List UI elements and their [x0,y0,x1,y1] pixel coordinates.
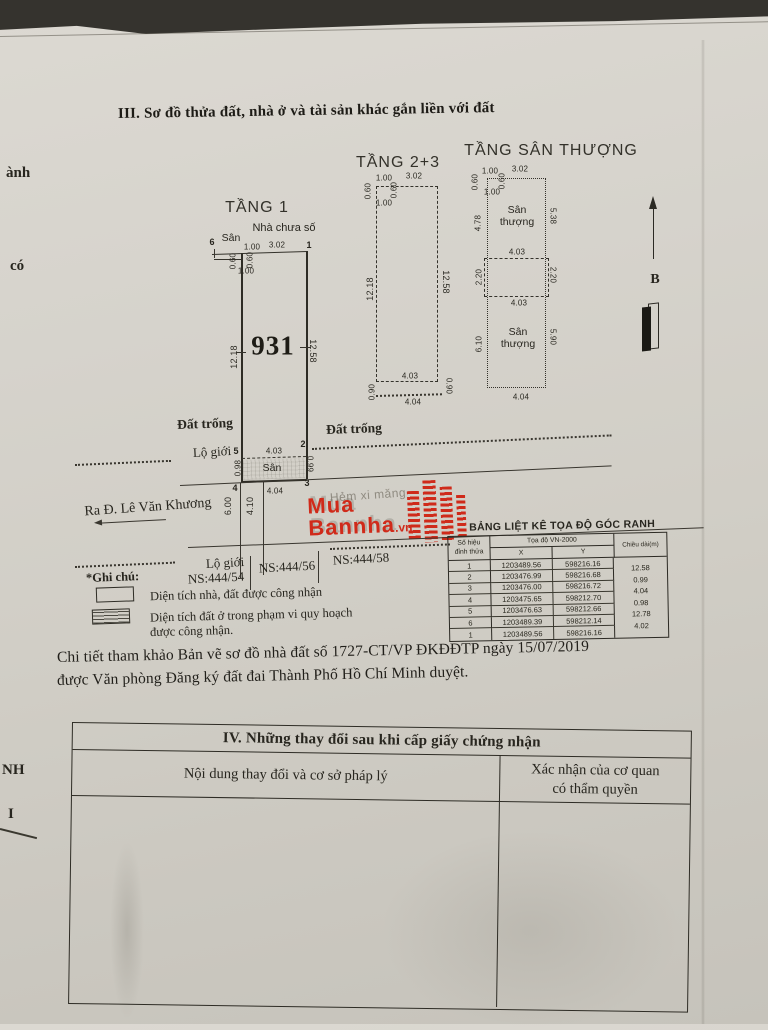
floor1-point-1: 1 [306,240,311,250]
floor1-dim-yard-right: 0.99 [306,456,315,472]
segment-length: 4.04 [614,586,667,596]
roof-terrace-top-label-1: Sân [508,204,527,216]
legend-label-2a: Diện tích đất ở trong phạm vi quy hoạch [150,605,353,625]
floor1-point-4: 4 [232,483,237,493]
segment-length: 12.78 [615,609,668,619]
floor23-dim-right: 12.58 [441,270,451,294]
house-number-3: NS:444/58 [332,550,389,569]
floor1-right-boundary [306,251,308,479]
roof-dim-s2-left: 6.10 [475,336,484,352]
roof-dim-top-left: 1.00 [482,167,498,176]
floor1-label: TẦNG 1 [225,199,289,217]
legend-label-1: Diện tích nhà, đất được công nhận [150,585,322,604]
scan-top-dark-band [0,0,768,34]
legend-box-hatched [92,608,131,624]
house-divider-a [250,556,251,590]
road-limit-dotted-bottom-left [75,562,175,568]
floor1-point-2: 2 [300,439,305,449]
page-top-edge-shadow [0,21,768,37]
floor23-dim-setback-c: 1.00 [376,199,392,208]
floor1-tick-right [300,347,311,348]
floor1-parcel-number: 931 [251,331,295,362]
floor1-house-note: Nhà chưa số [252,222,315,234]
floor1-left-boundary [241,253,243,481]
col-header-point: Số hiệuđỉnh thửa [448,536,490,561]
roof-terrace-bot-label-1: Sân [509,326,528,338]
floor1-point-6: 6 [209,237,214,247]
edge-fragment-2: có [10,258,24,275]
scanned-land-certificate-page: { "page": { "section3_title": "III. Sơ đ… [0,0,768,1024]
roof-dim-mid-top: 4.03 [509,248,525,257]
floor23-dim-setback-b: 0.60 [390,182,399,198]
paper-fold-crease [701,40,705,1024]
roof-dim-mid-right: 2.20 [549,267,558,283]
logo-line2: Bannha [308,512,396,541]
segment-length: 12.58 [614,563,667,573]
floor1-dim-left: 12.18 [229,345,239,369]
section4-col2-header: Xác nhận của cơ quancó thẩm quyền [500,756,691,804]
roof-terrace-bot-label-2: thượng [501,338,535,350]
legend-label-2b: được công nhận. [150,623,234,640]
floor1-dim-yard-bottom: 4.04 [267,487,283,496]
house-divider-b [318,551,319,583]
segment-length: 0.98 [614,597,667,607]
reference-note-line2: được Văn phòng Đăng ký đất đai Thành Phố… [57,663,469,690]
segment-length: 0.99 [614,574,667,584]
roof-dim-s1-left: 4.78 [474,215,483,231]
roof-dim-setback-a: 0.60 [471,174,480,190]
notes-marker: *Ghi chú: [86,569,140,586]
roof-mid-band [484,258,549,297]
edge-fragment-1: ành [6,165,30,182]
floor23-dim-bottom: 4.04 [405,398,421,407]
floor1-dim-setback-c: 1.00 [238,267,254,276]
roof-dim-s1-right: 5.38 [549,208,558,224]
floor23-dim-top: 3.02 [406,172,422,181]
road-limit-dotted-left [75,460,171,466]
roof-dim-mid-left: 2.20 [475,269,484,285]
floor23-dim-setback-a: 0.60 [364,183,373,199]
section4-table: IV. Những thay đổi sau khi cấp giấy chứn… [68,722,692,1013]
floor23-dim-bottom-in: 4.03 [402,372,418,381]
road-limit-label-upper: Lộ giới [192,443,231,461]
house-number-2: NS:444/56 [258,558,315,577]
col-header-length: Chiều dài(m) [613,533,666,558]
floor1-dim-top: 3.02 [269,241,285,250]
section3-title: III. Sơ đồ thửa đất, nhà ở và tài sản kh… [118,100,495,123]
floor23-dim-bottom-right: 0.90 [445,378,454,394]
section4-col1-header: Nội dung thay đổi và cơ sở pháp lý [72,750,501,801]
edge-fragment-4: I [8,806,14,823]
floor1-dim-top-left: 1.00 [244,243,260,252]
roof-dim-bottom: 4.04 [513,393,529,402]
edge-fragment-3: NH [2,762,25,779]
scale-bar-icon [640,303,666,355]
floor23-bottom-dotted [376,393,442,397]
floor1-yard-top-label: Sân [222,232,241,244]
roof-dim-setback-c: 1.00 [484,188,500,197]
floor1-top-boundary [212,251,307,255]
floor1-tick-left [236,352,246,353]
floor1-dim-yard-left: 0.98 [234,460,243,476]
floor23-dim-left: 12.18 [365,277,375,301]
legend-box-plain [96,586,135,602]
north-label: B [650,272,659,288]
edge-stroke [0,828,37,839]
floor1-point-5: 5 [233,446,238,456]
reference-note-line1: Chi tiết tham khảo Bản vẽ sơ đồ nhà đất … [57,638,589,667]
street-dim-road-width: 6.00 [223,497,233,515]
floor1-dim-right: 12.58 [308,339,318,363]
floor1-empty-right: Đất trống [326,420,382,438]
floor1-empty-left: Đất trống [177,415,233,433]
section4-body [69,796,690,1010]
floor23-outline [376,186,438,382]
roof-label: TẦNG SÂN THƯỢNG [464,142,638,160]
floor23-label: TẦNG 2+3 [356,154,440,172]
coordinate-table-block: BẢNG LIỆT KÊ TỌA ĐỘ GÓC RANH Số hiệuđỉnh… [447,518,669,644]
floor1-dim-setback-a: 0.60 [229,253,238,269]
house-number-1: NS:444/54 [187,569,244,588]
roof-dim-s2-right: 5.90 [549,329,558,345]
floor1-yard-bottom-label: Sân [263,462,282,474]
roof-dim-top: 3.02 [512,165,528,174]
street-dim-alley-width: 4.10 [245,497,255,515]
roof-dim-mid-bottom: 4.03 [511,299,527,308]
roof-terrace-top-label-2: thượng [500,216,534,228]
floor1-notch-vline [214,249,215,258]
segment-length: 4.02 [615,620,668,630]
floor1-dim-yard-top: 4.03 [266,447,282,456]
coordinate-table: Số hiệuđỉnh thửa Tọa độ VN-2000 X Y Chiề… [447,532,669,642]
floor23-dim-bottom-left: 0.90 [368,384,377,400]
